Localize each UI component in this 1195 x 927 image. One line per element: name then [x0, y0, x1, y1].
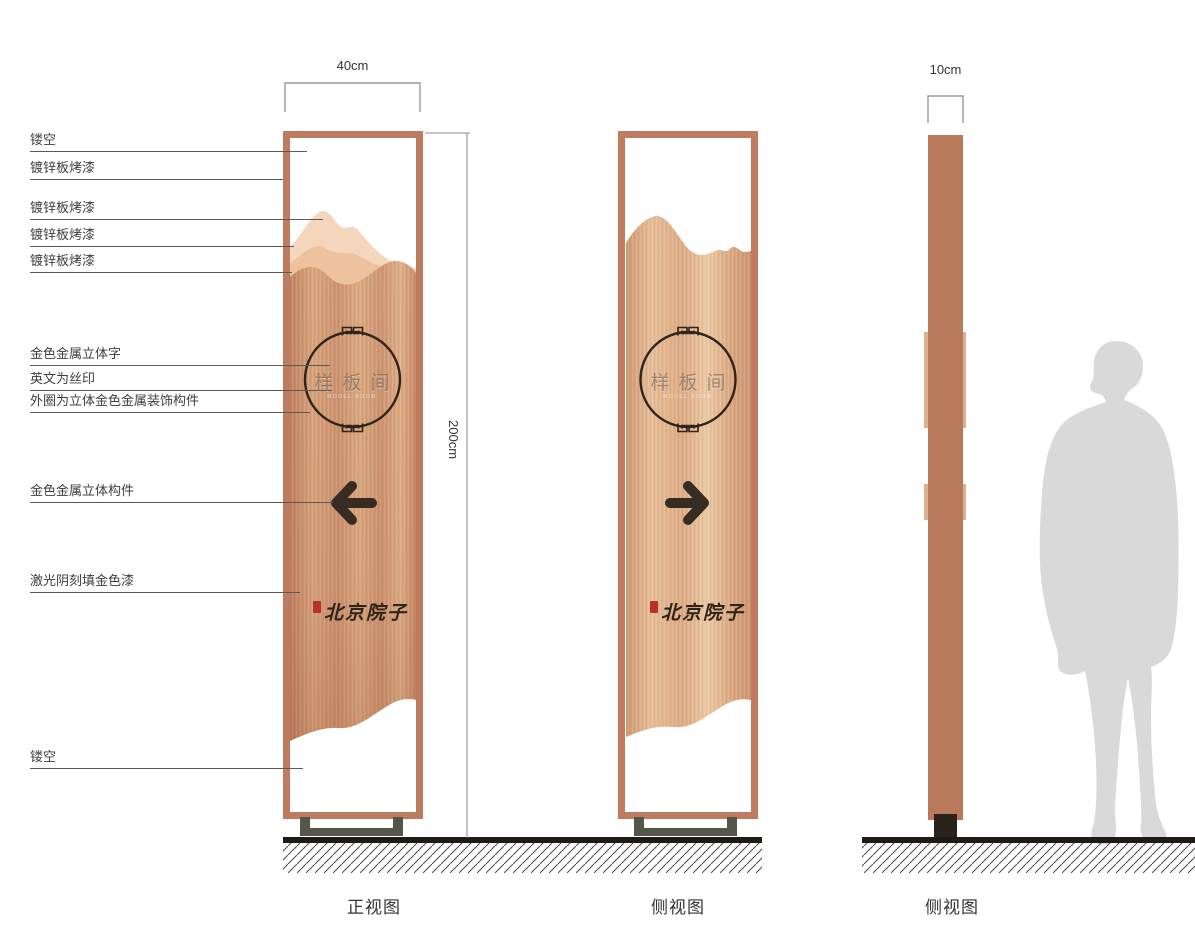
room-name-en-front: MODEL ROOM: [290, 394, 414, 400]
front-view-sign: [287, 135, 420, 837]
callout-galvanized-3: 镀锌板烤漆: [30, 227, 95, 243]
callout-line: [30, 390, 332, 391]
base-bracket: [300, 817, 403, 836]
dimension-front-width: 40cm: [330, 58, 375, 73]
profile-foot: [934, 814, 957, 840]
callout-outer-ring: 外圈为立体金色金属装饰构件: [30, 393, 199, 409]
ground-right: [862, 837, 1195, 873]
callout-hollow-top: 镂空: [30, 132, 56, 148]
ground-left: [283, 837, 762, 873]
brand-seal: [650, 601, 658, 613]
signage-spec-sheet: 镂空 镀锌板烤漆 镀锌板烤漆 镀锌板烤漆 镀锌板烤漆 金色金属立体字 英文为丝印…: [0, 0, 1195, 927]
callout-line: [30, 151, 307, 152]
brand-logotype-side: 北京院子: [659, 598, 747, 625]
room-name-en-side: MODEL ROOM: [626, 394, 750, 400]
callout-line: [30, 592, 300, 593]
callout-galvanized-4: 镀锌板烤漆: [30, 253, 95, 269]
callout-line: [30, 365, 330, 366]
caption-front-view: 正视图: [342, 893, 406, 918]
profile-bar: [928, 135, 963, 820]
callout-line: [30, 179, 283, 180]
callout-line: [30, 246, 294, 247]
callout-galvanized-2: 镀锌板烤漆: [30, 200, 95, 216]
base-bracket: [634, 817, 737, 836]
caption-side-view-1: 侧视图: [646, 893, 710, 918]
brand-seal: [313, 601, 321, 613]
callout-hollow-bottom: 镂空: [30, 749, 56, 765]
callout-line: [30, 272, 292, 273]
width-bracket-10cm: [928, 96, 963, 123]
callout-laser-engrave: 激光阴刻填金色漆: [30, 573, 134, 589]
human-silhouette: [1040, 341, 1179, 845]
dimension-side-width: 10cm: [923, 62, 968, 77]
callout-galvanized-1: 镀锌板烤漆: [30, 160, 95, 176]
copper-panel: [626, 216, 751, 737]
side-view-sign: [622, 135, 755, 837]
technical-drawing: [0, 0, 1195, 927]
callout-line: [30, 219, 323, 220]
brand-logotype-front: 北京院子: [322, 598, 410, 625]
room-name-front: 样板间: [290, 368, 414, 395]
callout-gold-3d-component: 金色金属立体构件: [30, 483, 134, 499]
callout-gold-3d-text: 金色金属立体字: [30, 346, 121, 362]
callout-line: [30, 412, 310, 413]
room-name-side: 样板间: [626, 368, 750, 395]
caption-side-view-2: 侧视图: [920, 893, 984, 918]
callout-line: [30, 502, 333, 503]
callout-line: [30, 768, 303, 769]
dimension-height: 200cm: [446, 420, 461, 459]
profile-view-sign: [924, 135, 966, 840]
callout-english-silkscreen: 英文为丝印: [30, 371, 95, 387]
width-bracket-40cm: [285, 83, 420, 112]
